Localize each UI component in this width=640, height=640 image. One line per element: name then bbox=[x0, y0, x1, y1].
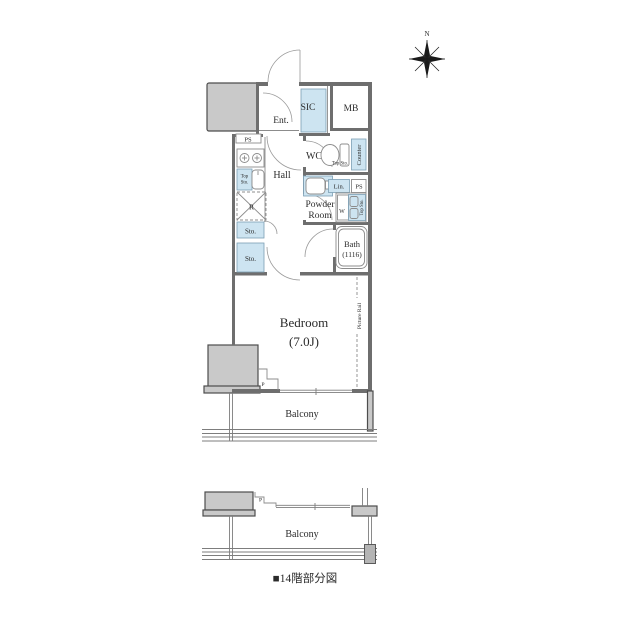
entry-zone: SIC Ent. MB bbox=[273, 89, 358, 132]
lower-section-block-base bbox=[203, 510, 255, 516]
storage1-door-arc bbox=[264, 221, 277, 234]
bedroom-door-arc bbox=[267, 247, 300, 280]
label-sto-kitchen: Sto. bbox=[241, 181, 249, 186]
lower-section-block bbox=[205, 492, 253, 510]
compass-rose: N bbox=[409, 30, 445, 78]
label-balcony-upper: Balcony bbox=[285, 409, 318, 420]
label-refrigerator: R bbox=[249, 203, 254, 212]
label-powder-1: Powder bbox=[305, 200, 335, 210]
label-mb: MB bbox=[344, 104, 359, 114]
floor-14-partial-section: P Balcony bbox=[202, 488, 377, 564]
label-wc: WC bbox=[306, 151, 322, 162]
label-ent: Ent. bbox=[273, 116, 289, 126]
washbasin bbox=[306, 178, 325, 194]
label-top-kitchen: Top bbox=[241, 175, 249, 180]
hall-door-arc bbox=[267, 136, 301, 170]
compass-north-needle bbox=[424, 40, 430, 59]
powder-room: Lin. PS Powder Room W Top Sto. bbox=[304, 176, 367, 222]
compass-north-label: N bbox=[424, 30, 429, 38]
label-top-sto-washer: Top Sto. bbox=[360, 199, 365, 215]
label-bath-1: Bath bbox=[344, 239, 361, 249]
kitchen-top-storage bbox=[237, 169, 252, 190]
label-p-lower: P bbox=[259, 498, 262, 504]
bath-door-arc bbox=[305, 229, 333, 257]
label-lin: Lin. bbox=[334, 184, 345, 191]
kitchen-strip: PS Top Sto. R Sto. Sto. Hall bbox=[236, 134, 291, 272]
balcony-right-column bbox=[368, 391, 374, 431]
label-picture-rail: Picture Rail bbox=[357, 302, 363, 329]
label-ps-right: PS bbox=[355, 184, 363, 191]
label-bath-2: (1116) bbox=[342, 250, 362, 259]
lower-right-wall bbox=[352, 506, 377, 516]
balcony-upper: Balcony bbox=[202, 391, 377, 441]
label-p-upper: P bbox=[261, 382, 264, 388]
floor-plan-page: N bbox=[0, 0, 640, 640]
railing-partition-box bbox=[365, 545, 376, 564]
caption: ■14階部分図 bbox=[273, 571, 337, 585]
upper-left-block bbox=[207, 83, 258, 131]
entrance-door-arc bbox=[268, 50, 300, 82]
label-ps-left: PS bbox=[244, 137, 252, 144]
label-bedroom-2: (7.0J) bbox=[289, 334, 319, 349]
stove bbox=[237, 149, 264, 167]
label-hall: Hall bbox=[273, 170, 290, 181]
label-sto-2: Sto. bbox=[245, 255, 256, 263]
label-top-sto-wc: Top Sto. bbox=[332, 162, 348, 167]
label-bedroom-1: Bedroom bbox=[280, 315, 328, 330]
label-powder-2: Room bbox=[308, 211, 332, 221]
label-sic: SIC bbox=[301, 103, 316, 113]
label-balcony-lower: Balcony bbox=[285, 529, 318, 540]
label-sto-1: Sto. bbox=[245, 228, 256, 236]
label-washer: W bbox=[339, 209, 345, 215]
floor-plan-image: N bbox=[0, 0, 640, 640]
label-counter: Counter bbox=[356, 144, 363, 166]
wc-room: WC Top Sto. Counter bbox=[306, 139, 366, 170]
bath-room: Bath (1116) bbox=[336, 227, 367, 269]
lower-left-block bbox=[208, 345, 258, 387]
bedroom: Bedroom (7.0J) Picture Rail P bbox=[258, 277, 363, 395]
